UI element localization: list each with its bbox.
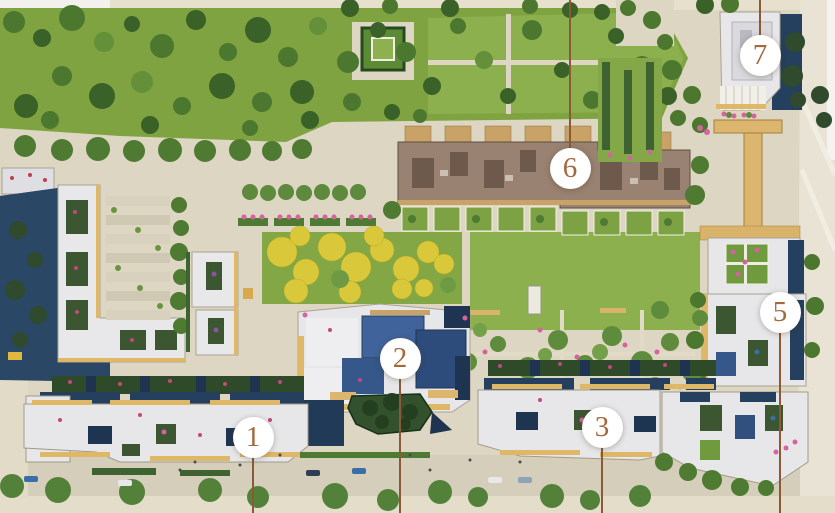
pergola-vertical (744, 133, 762, 233)
marker-leader-6 (569, 0, 571, 168)
building-marker-2[interactable]: 2 (380, 338, 421, 379)
building-6-front-yards (402, 207, 684, 235)
site-plan-illustration (0, 0, 835, 513)
pergola-horizontal (714, 120, 782, 133)
building-marker-1[interactable]: 1 (233, 417, 274, 458)
building-marker-6[interactable]: 6 (550, 148, 591, 189)
marker-leader-2 (399, 358, 401, 513)
masterplan-map: 123567 (0, 0, 835, 513)
building-marker-3[interactable]: 3 (582, 407, 623, 448)
building-marker-7[interactable]: 7 (740, 35, 781, 76)
marker-leader-5 (779, 312, 781, 513)
building-marker-5[interactable]: 5 (760, 292, 801, 333)
